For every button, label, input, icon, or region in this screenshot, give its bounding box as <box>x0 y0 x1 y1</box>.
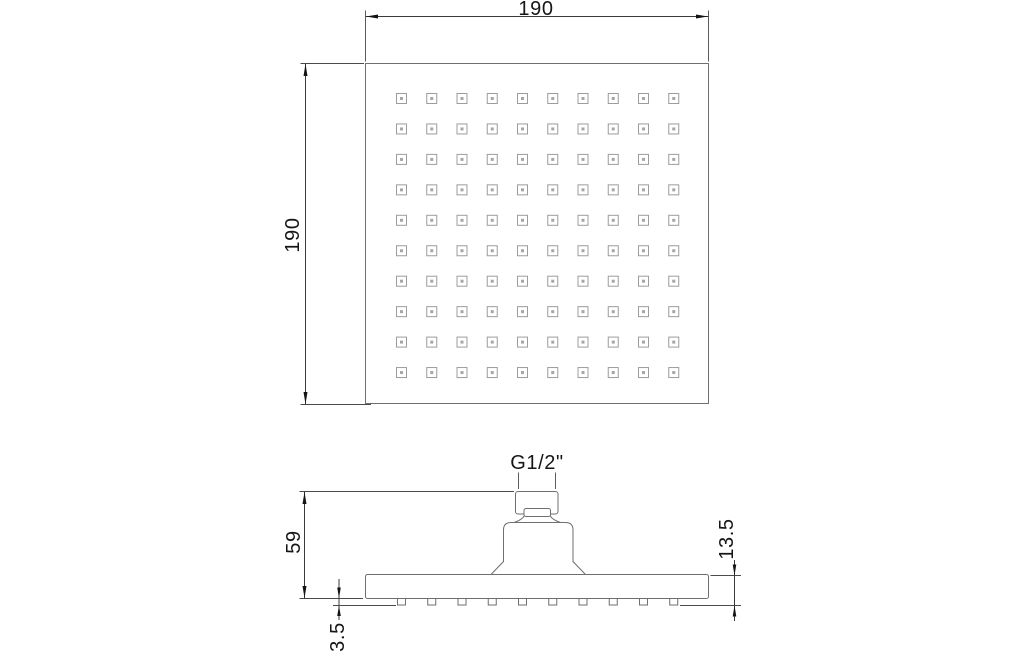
nozzle-dot <box>491 371 494 374</box>
nozzle-dot <box>642 249 645 252</box>
arrowhead-up <box>733 606 737 617</box>
nozzle-dot <box>582 249 585 252</box>
arrowhead-left <box>366 15 378 19</box>
nozzle-dot <box>642 310 645 313</box>
arrowhead-bottom <box>303 586 307 598</box>
side-nozzle-tab <box>640 599 648 606</box>
nozzle-dot <box>400 158 403 161</box>
nozzle-dot <box>642 219 645 222</box>
nozzle-dot <box>461 341 464 344</box>
side-nozzle-tab <box>428 599 436 606</box>
nozzle-dot <box>491 249 494 252</box>
technical-drawing-page: 190 190 59 <box>0 0 1024 657</box>
nozzle-dot <box>612 371 615 374</box>
nozzle-dot <box>430 158 433 161</box>
arrowhead-up <box>337 606 341 617</box>
nozzle-dot <box>491 280 494 283</box>
nozzle-dot <box>642 127 645 130</box>
nozzle-dot <box>612 341 615 344</box>
nozzle-dot <box>551 127 554 130</box>
dimension-label-edge-thickness: 13.5 <box>716 518 738 559</box>
nozzle-dot <box>461 158 464 161</box>
nozzle-dot <box>521 158 524 161</box>
dimension-label-width: 190 <box>518 0 553 20</box>
nozzle-dot <box>461 219 464 222</box>
nozzle-dot <box>551 188 554 191</box>
nozzle-dot <box>551 310 554 313</box>
thread-size-label: G1/2" <box>510 452 563 474</box>
nozzle-dot <box>642 188 645 191</box>
nozzle-dot <box>582 310 585 313</box>
nozzle-dot <box>430 127 433 130</box>
nozzle-dot <box>491 158 494 161</box>
dimension-label-nozzle-height: 3.5 <box>327 622 349 652</box>
nozzle-dot <box>400 249 403 252</box>
nozzle-dot <box>672 97 675 100</box>
edge-thickness-dimension: 13.5 <box>680 518 741 621</box>
nozzle-dot <box>491 219 494 222</box>
nozzle-dot <box>430 188 433 191</box>
nozzle-dot <box>672 127 675 130</box>
arrowhead-top <box>304 64 308 76</box>
arrowhead-down <box>337 588 341 599</box>
nozzle-dot <box>521 127 524 130</box>
nozzle-dot <box>672 249 675 252</box>
nozzle-dot <box>612 219 615 222</box>
nozzle-dot <box>582 371 585 374</box>
arrowhead-down <box>733 565 737 576</box>
nozzle-dot <box>582 97 585 100</box>
dimension-label-height: 190 <box>282 217 304 252</box>
nozzle-dot <box>551 341 554 344</box>
nozzle-dot <box>672 280 675 283</box>
nozzle-dot <box>491 310 494 313</box>
nozzle-dot <box>461 127 464 130</box>
nozzle-dot <box>430 97 433 100</box>
plate-side-profile <box>366 575 709 599</box>
side-nozzle-tab <box>398 599 406 606</box>
nozzle-dot <box>672 310 675 313</box>
nozzle-dot <box>672 188 675 191</box>
nozzle-dot <box>430 310 433 313</box>
nozzle-dot <box>551 158 554 161</box>
nozzle-dot <box>400 127 403 130</box>
nozzle-dot <box>461 249 464 252</box>
nozzle-dot <box>582 341 585 344</box>
nozzle-dot <box>582 280 585 283</box>
nozzle-dot <box>612 310 615 313</box>
top-view-height-dimension: 190 <box>282 64 371 405</box>
nozzle-dot <box>521 188 524 191</box>
nozzle-dot <box>521 371 524 374</box>
side-nozzle-tab <box>488 599 496 606</box>
nozzle-dot <box>400 341 403 344</box>
nozzle-dot <box>461 371 464 374</box>
nozzle-dot <box>672 158 675 161</box>
shower-head-drawing: 190 190 59 <box>0 0 1024 657</box>
nozzle-dot <box>400 280 403 283</box>
nozzle-dot <box>461 280 464 283</box>
nozzle-dot <box>430 219 433 222</box>
nozzle-dot <box>430 249 433 252</box>
top-view: 190 190 <box>282 0 709 405</box>
side-nozzle-tab <box>519 599 527 606</box>
nozzle-dot <box>430 280 433 283</box>
nozzle-dot <box>642 97 645 100</box>
nozzle-dot <box>521 249 524 252</box>
nozzle-dot <box>612 97 615 100</box>
nozzle-dot <box>612 280 615 283</box>
nozzle-dot <box>400 310 403 313</box>
nozzle-dot <box>521 341 524 344</box>
side-nozzle-row <box>398 599 678 606</box>
side-view: 59 G1/2" 3.5 <box>283 452 741 652</box>
nozzle-dot <box>521 310 524 313</box>
nozzle-dot <box>582 188 585 191</box>
top-view-width-dimension: 190 <box>366 0 709 62</box>
side-nozzle-tab <box>458 599 466 606</box>
nozzle-dot <box>430 371 433 374</box>
thread-size-callout: G1/2" <box>510 452 563 489</box>
nozzle-dot <box>551 371 554 374</box>
nozzle-dot <box>551 249 554 252</box>
nozzle-dot <box>430 341 433 344</box>
nozzle-dot <box>642 158 645 161</box>
nozzle-dot <box>642 371 645 374</box>
side-nozzle-tab <box>670 599 678 606</box>
nozzle-dot <box>521 219 524 222</box>
nozzle-dot <box>400 97 403 100</box>
nozzle-dot <box>612 188 615 191</box>
nozzle-dot <box>582 219 585 222</box>
nozzle-dot <box>582 158 585 161</box>
nozzle-dot <box>612 158 615 161</box>
nozzle-dot <box>551 97 554 100</box>
shower-head-face-plate <box>366 64 709 404</box>
nozzle-dot <box>612 249 615 252</box>
locknut <box>524 509 551 517</box>
nozzle-dot <box>521 97 524 100</box>
nozzle-dot <box>642 341 645 344</box>
nozzle-dot <box>551 280 554 283</box>
arrowhead-right <box>696 15 708 19</box>
nozzle-dot <box>491 341 494 344</box>
nozzle-dot <box>672 219 675 222</box>
dimension-label-overall-height: 59 <box>283 530 305 553</box>
nozzle-dot <box>461 97 464 100</box>
arrowhead-bottom <box>304 392 308 404</box>
nozzle-dot <box>491 97 494 100</box>
nozzle-dot <box>582 127 585 130</box>
side-nozzle-tab <box>579 599 587 606</box>
nozzle-dot <box>400 371 403 374</box>
nozzle-dot <box>612 127 615 130</box>
arrowhead-top <box>303 492 307 504</box>
side-nozzle-tab <box>549 599 557 606</box>
nozzle-dot <box>672 371 675 374</box>
nozzle-dot <box>400 188 403 191</box>
nozzle-dot <box>642 280 645 283</box>
nozzle-dot <box>491 127 494 130</box>
side-nozzle-tab <box>609 599 617 606</box>
nozzle-dot <box>672 341 675 344</box>
shower-head-body <box>491 523 586 575</box>
nozzle-dot <box>461 310 464 313</box>
nozzle-dot <box>551 219 554 222</box>
nozzle-dot <box>491 188 494 191</box>
nozzle-dot <box>521 280 524 283</box>
nozzle-dot <box>461 188 464 191</box>
nozzle-dot <box>400 219 403 222</box>
